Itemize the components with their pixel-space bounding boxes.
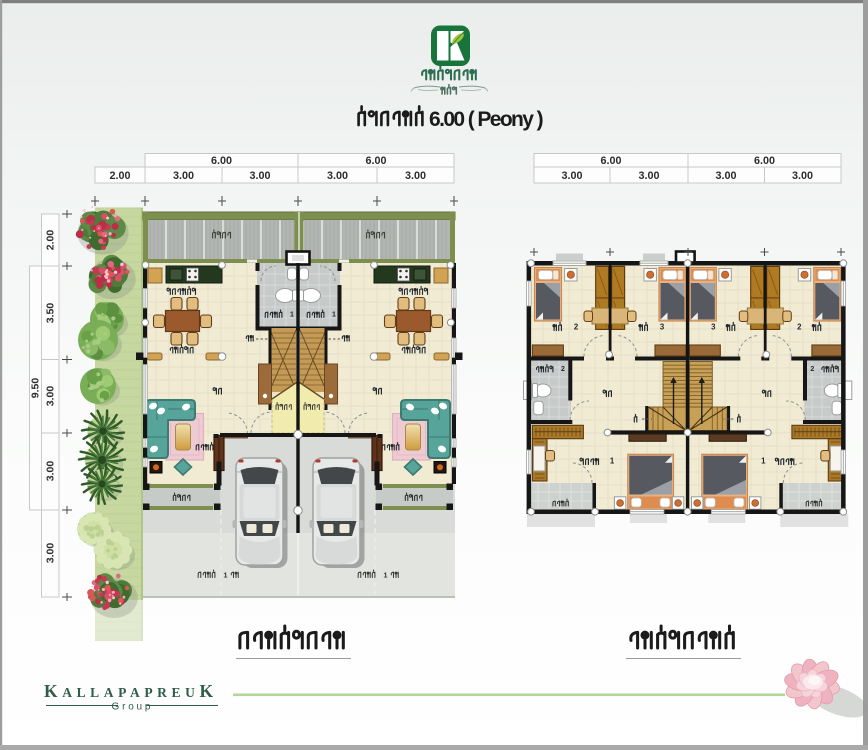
svg-text:3.00: 3.00 xyxy=(792,170,813,182)
svg-text:6.00: 6.00 xyxy=(211,155,232,167)
svg-text:1: 1 xyxy=(383,571,387,580)
svg-text:3.00: 3.00 xyxy=(638,170,659,182)
svg-text:3.00: 3.00 xyxy=(561,170,582,182)
svg-text:3.00: 3.00 xyxy=(715,170,736,182)
svg-text:6.00: 6.00 xyxy=(365,155,386,167)
svg-text:3.00: 3.00 xyxy=(45,386,57,407)
svg-text:1: 1 xyxy=(761,457,766,466)
svg-text:6.00 ( Peony ): 6.00 ( Peony ) xyxy=(429,108,543,131)
svg-text:6.00: 6.00 xyxy=(754,155,775,167)
svg-text:3.00: 3.00 xyxy=(45,461,57,482)
svg-text:3.00: 3.00 xyxy=(45,543,57,564)
svg-text:2.00: 2.00 xyxy=(45,230,57,251)
svg-text:3: 3 xyxy=(660,323,665,332)
svg-text:2.00: 2.00 xyxy=(109,170,130,182)
svg-text:1: 1 xyxy=(610,457,615,466)
svg-text:3.00: 3.00 xyxy=(173,170,194,182)
svg-text:3.00: 3.00 xyxy=(327,170,348,182)
svg-text:3: 3 xyxy=(711,323,716,332)
svg-text:1: 1 xyxy=(332,312,336,319)
svg-text:2: 2 xyxy=(561,366,565,373)
svg-text:6.00: 6.00 xyxy=(600,155,621,167)
svg-text:1: 1 xyxy=(223,571,227,580)
svg-text:3.00: 3.00 xyxy=(249,170,270,182)
svg-text:3.00: 3.00 xyxy=(405,170,426,182)
svg-text:2: 2 xyxy=(810,366,814,373)
svg-text:2: 2 xyxy=(797,323,802,332)
svg-text:G r o u p: G r o u p xyxy=(112,702,151,713)
svg-text:9.50: 9.50 xyxy=(30,378,42,399)
svg-text:2: 2 xyxy=(574,323,579,332)
svg-text:3.50: 3.50 xyxy=(45,303,57,324)
svg-text:1: 1 xyxy=(290,312,294,319)
